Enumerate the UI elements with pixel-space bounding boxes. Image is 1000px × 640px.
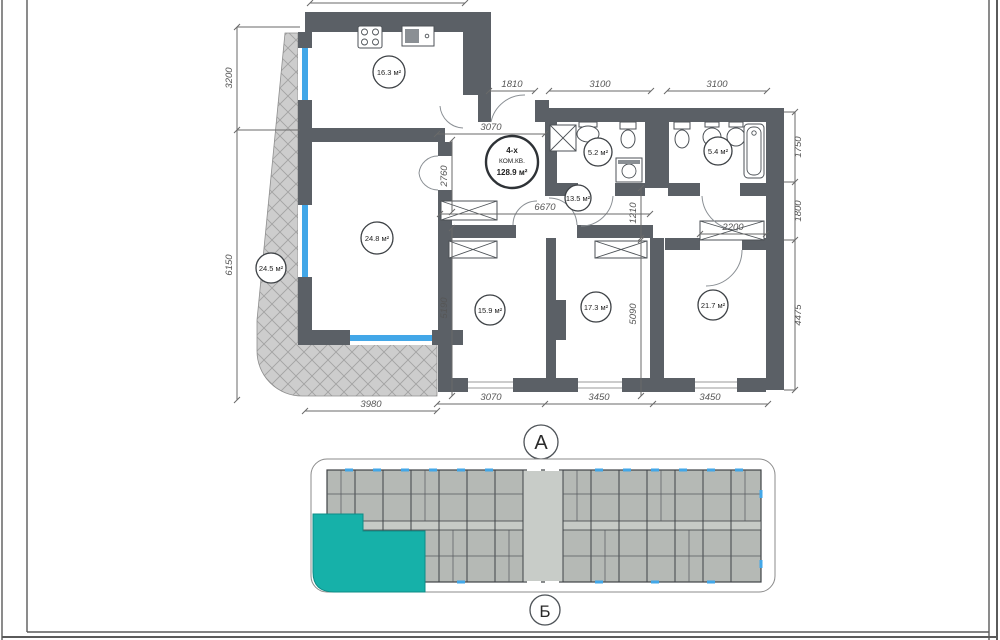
- unit-total-area: 128.9 м²: [497, 168, 528, 177]
- dim-top-cropped: [307, 0, 468, 6]
- dim-right-lower-label: 4475: [793, 304, 804, 326]
- wall-shaft: [645, 108, 669, 188]
- door-arc-bedroom-left: [513, 201, 537, 225]
- wall-hall-left-upper: [438, 142, 452, 156]
- keyplan-core: [523, 470, 563, 582]
- section-marker-b: Б: [530, 595, 560, 625]
- dim-passage-label: 1210: [628, 202, 639, 224]
- window-bedroom-right: [695, 378, 737, 392]
- dim-hall-depth-label: 2760: [439, 165, 450, 188]
- wall-bottom-5: [652, 378, 695, 392]
- wardrobe-symbol-3: [595, 241, 647, 258]
- wall-bottom-1: [438, 378, 468, 392]
- door-arc-entry: [491, 95, 525, 122]
- door-arc-bedroom-right: [706, 250, 742, 286]
- toilet-icon-bath-small: [620, 122, 636, 148]
- dim-bottom-bedroom-middle-label: 3450: [588, 392, 610, 403]
- wardrobe-symbol-1: [441, 201, 497, 220]
- door-arc-hall-double: [419, 156, 438, 190]
- dim-bedroom-left-depth-label: 5190: [439, 297, 450, 319]
- svg-text:24.8 м²: 24.8 м²: [365, 234, 390, 243]
- wall-right: [766, 108, 784, 390]
- dim-bottom-balcony-label: 3980: [360, 399, 382, 410]
- wardrobe-symbol-2: [449, 241, 497, 258]
- svg-text:16.3 м²: 16.3 м²: [377, 68, 402, 77]
- room-label-balcony: 24.5 м²: [256, 253, 286, 283]
- wall-bedroom-right-top-a: [665, 238, 700, 250]
- wall-bedroom-left-top: [438, 225, 516, 238]
- svg-text:5.2 м²: 5.2 м²: [588, 148, 609, 157]
- keyplan-core-notch-2: [545, 461, 559, 471]
- wall-bedrooms-divider-1: [546, 238, 556, 390]
- wall-bottom-6: [737, 378, 766, 392]
- dim-bottom-bedroom-left-label: 3070: [480, 392, 502, 403]
- dim-bedroom-middle-depth-label: 5090: [628, 303, 639, 325]
- room-label-kitchen: 16.3 м²: [373, 56, 405, 88]
- dim-kitchen-width-label: 3070: [480, 122, 502, 133]
- room-label-bath-small: 5.2 м²: [584, 138, 612, 166]
- unit-type-line1: 4-х: [506, 146, 518, 155]
- keyplan-core-notch-4: [545, 581, 559, 591]
- unit-type-line2: КОМ.КВ.: [499, 158, 525, 165]
- floor-plan: 1810 3100 3100 3070 2760 6670 1210 2200 …: [224, 0, 804, 414]
- svg-text:21.7 м²: 21.7 м²: [701, 301, 726, 310]
- dim-corridor-label: 6670: [534, 202, 556, 213]
- washing-machine-icon: [616, 158, 642, 182]
- wall-divider-notch: [556, 300, 566, 340]
- wall-bath-bottom-3: [668, 183, 700, 196]
- room-label-bedroom-right: 21.7 м²: [698, 290, 728, 320]
- keyplan-core-notch-3: [527, 581, 541, 591]
- room-label-living: 24.8 м²: [361, 222, 393, 254]
- svg-text:15.9 м²: 15.9 м²: [478, 306, 503, 315]
- room-label-bedroom-middle: 17.3 м²: [581, 292, 611, 322]
- windows: [298, 48, 737, 392]
- wall-living-bottom-a: [298, 330, 350, 345]
- dim-bath-small-label: 3100: [589, 79, 611, 90]
- toilet-icon-bath-large: [674, 122, 690, 148]
- keyplan-core-notch-1: [527, 461, 541, 471]
- window-bedroom-left: [468, 378, 513, 392]
- door-arc-kitchen: [440, 106, 463, 128]
- window-kitchen: [302, 48, 308, 100]
- wall-bath-bottom-4: [740, 183, 766, 196]
- dim-right-upper-label: 1750: [793, 136, 804, 158]
- window-living: [302, 205, 308, 277]
- shower-icon: [550, 125, 576, 151]
- bathtub-icon: [744, 124, 764, 178]
- wall-kitchen-right-block: [463, 12, 491, 95]
- room-label-bath-large: 5.4 м²: [704, 137, 732, 165]
- unit-summary-circle: 4-х КОМ.КВ. 128.9 м²: [486, 136, 538, 188]
- dim-bath-large-label: 3100: [706, 79, 728, 90]
- dim-left-upper-label: 3200: [224, 67, 235, 89]
- wall-bedroom-middle-top: [577, 225, 653, 238]
- window-bedroom-middle: [578, 378, 622, 392]
- section-marker-a: А: [524, 425, 558, 459]
- wall-kitchen-living-divider: [305, 128, 445, 142]
- dim-right-middle-label: 1800: [793, 200, 804, 222]
- wall-bottom-2: [513, 378, 547, 392]
- svg-text:5.4 м²: 5.4 м²: [708, 147, 729, 156]
- dim-bottom-bedroom-right-label: 3450: [699, 392, 721, 403]
- stove-icon: [358, 26, 382, 48]
- dim-wardrobe-label: 2200: [721, 222, 744, 233]
- room-label-bedroom-left: 15.9 м²: [475, 295, 505, 325]
- wall-entry-pier-left: [478, 95, 491, 122]
- axis-b-label: Б: [539, 602, 550, 621]
- building-key-plan: [311, 459, 775, 592]
- wall-bedrooms-divider-2: [650, 238, 664, 390]
- svg-text:17.3 м²: 17.3 м²: [584, 303, 609, 312]
- wall-bottom-3: [547, 378, 578, 392]
- svg-text:13.5 м²: 13.5 м²: [566, 194, 591, 203]
- dim-entry-label: 1810: [501, 79, 523, 90]
- axis-a-label: А: [534, 432, 548, 454]
- kitchen-sink-icon: [402, 26, 434, 46]
- wall-bottom-4: [622, 378, 652, 392]
- floorplan-sheet: 1810 3100 3100 3070 2760 6670 1210 2200 …: [0, 0, 1000, 640]
- window-living-bottom: [350, 335, 432, 341]
- svg-text:24.5 м²: 24.5 м²: [259, 264, 284, 273]
- room-label-hall: 13.5 м²: [565, 185, 591, 211]
- dim-left-lower-label: 6150: [224, 254, 235, 276]
- wall-living-bottom-b: [432, 330, 463, 345]
